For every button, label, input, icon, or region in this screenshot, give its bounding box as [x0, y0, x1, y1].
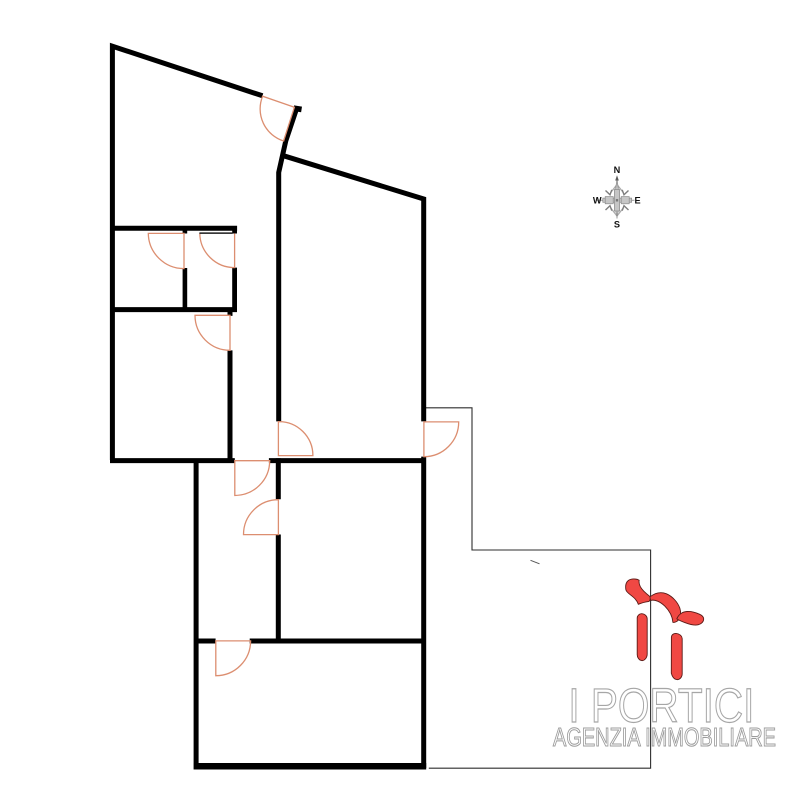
svg-text:AGENZIA IMMOBILIARE: AGENZIA IMMOBILIARE — [553, 722, 776, 752]
svg-text:E: E — [635, 196, 641, 206]
svg-text:N: N — [614, 165, 621, 175]
svg-text:W: W — [593, 196, 602, 206]
svg-text:S: S — [614, 220, 620, 230]
